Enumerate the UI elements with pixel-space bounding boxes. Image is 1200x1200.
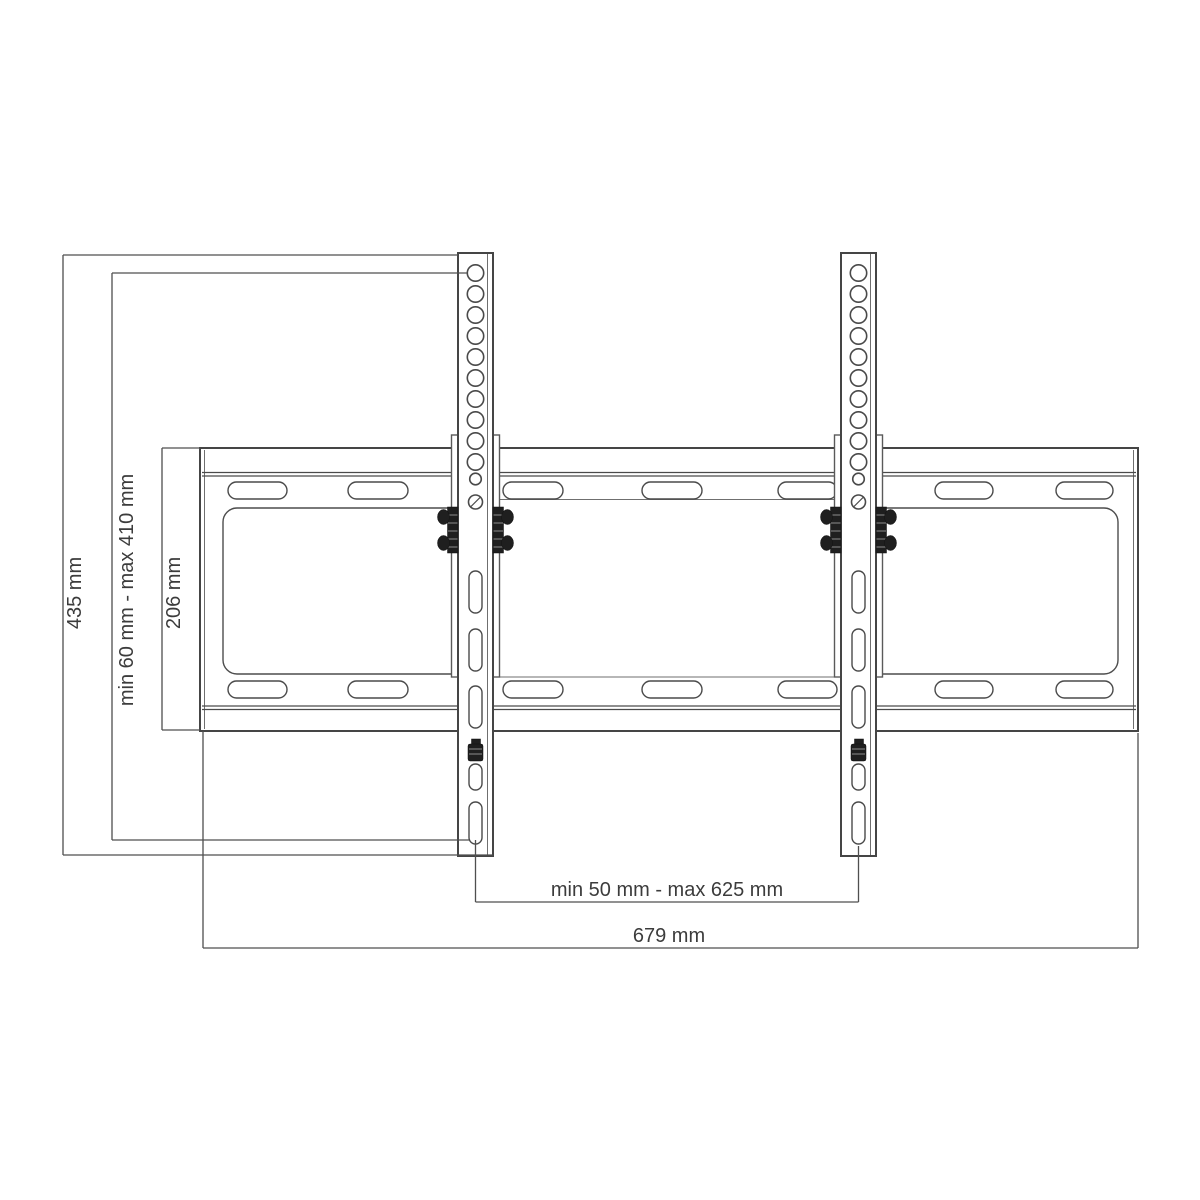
label-vertical-adjust-range: min 60 mm - max 410 mm (116, 474, 138, 706)
label-bracket-height: 435 mm (64, 557, 86, 629)
label-horizontal-adjust-range: min 50 mm - max 625 mm (551, 879, 783, 901)
label-plate-height: 206 mm (163, 557, 185, 629)
wall-plate (200, 448, 1138, 731)
wall-plate-top-slots (228, 482, 1113, 499)
wall-plate-bottom-slots (228, 681, 1113, 698)
dimension-horizontal-adjust-range: min 50 mm - max 625 mm (476, 840, 859, 902)
dimension-plate-height: 206 mm (162, 448, 200, 730)
wall-mount-diagram: 435 mm min 60 mm - max 410 mm 206 mm min… (0, 0, 1200, 1200)
technical-drawing-canvas: 435 mm min 60 mm - max 410 mm 206 mm min… (0, 0, 1200, 1200)
label-plate-width: 679 mm (633, 925, 705, 947)
